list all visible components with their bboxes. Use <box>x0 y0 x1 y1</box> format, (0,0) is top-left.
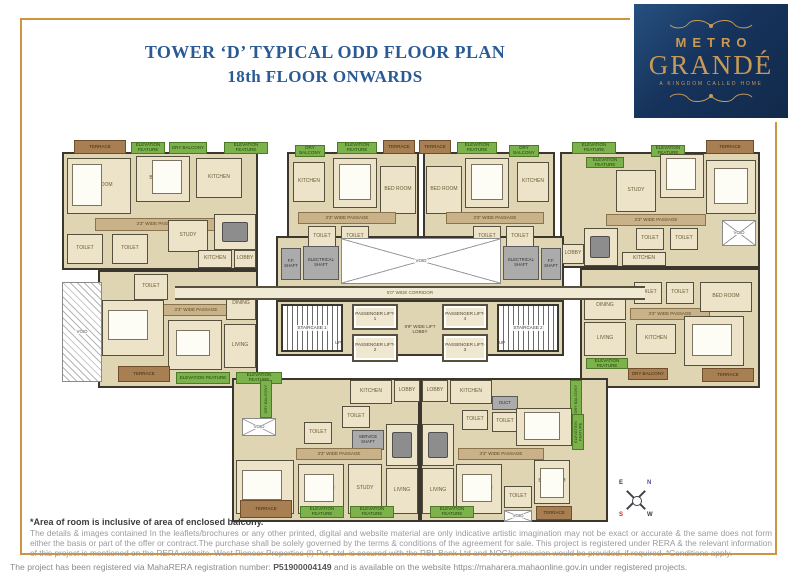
toilet-area: TOILET <box>342 406 370 428</box>
rera-registration-number: P51900004149 <box>273 562 331 572</box>
bed-area <box>692 324 732 356</box>
elevation-feature-area: ELEVATION FEATURE <box>176 372 230 384</box>
bed-area <box>304 474 334 502</box>
kitchen-area: KITCHEN <box>622 252 666 266</box>
void-area: VOID <box>62 282 102 382</box>
tbl-area <box>590 236 610 258</box>
f-f-shaft-area: F.F. SHAFT <box>281 248 301 280</box>
duct-area: DUCT <box>492 396 518 410</box>
tbl-area <box>222 222 248 242</box>
bed-area <box>524 412 560 440</box>
elevation-feature-area: ELEVATION FEATURE <box>300 506 344 518</box>
toilet-area: TOILET <box>462 410 488 430</box>
terrace-area: TERRACE <box>702 368 754 382</box>
3-3-wide-passage-area: 3'3" WIDE PASSAGE <box>458 448 544 460</box>
bed-area <box>152 160 182 194</box>
logo-tagline: A KINGDOM CALLED HOME <box>659 81 762 87</box>
dry-balcony-area: DRY BALCONY <box>509 145 539 157</box>
bed-room-area: BED ROOM <box>380 166 416 214</box>
kitchen-area: KITCHEN <box>196 158 242 198</box>
elevation-feature-area: ELEVATION FEATURE <box>224 142 268 154</box>
terrace-area: TERRACE <box>706 140 754 154</box>
f-f-shaft-area: F.F. SHAFT <box>541 248 561 280</box>
logo-line2: GRANDÉ <box>649 53 774 77</box>
area-note: *Area of room is inclusive of area of en… <box>30 517 263 527</box>
toilet-area: TOILET <box>504 486 532 508</box>
kitchen-area: KITCHEN <box>350 380 392 404</box>
elevation-feature-area: ELEVATION FEATURE <box>337 142 377 154</box>
compass-north-label: N <box>647 480 651 486</box>
logo-flourish-top-icon <box>666 20 756 32</box>
tbl-area <box>428 432 448 458</box>
living-area: LIVING <box>584 322 626 356</box>
elevation-feature-area: ELEVATION FEATURE <box>430 506 474 518</box>
toilet-area: TOILET <box>112 234 148 264</box>
toilet-area: TOILET <box>304 422 332 444</box>
bed-room-area: BED ROOM <box>700 282 752 312</box>
bed-area <box>339 164 371 200</box>
terrace-area: TERRACE <box>419 140 451 154</box>
kitchen-area: KITCHEN <box>636 324 676 354</box>
bed-area <box>471 164 503 200</box>
living-area: LIVING <box>224 324 256 368</box>
toilet-area: TOILET <box>308 226 336 248</box>
bed-room-area: BED ROOM <box>426 166 462 214</box>
toilet-area: TOILET <box>506 226 534 248</box>
up-area: UP <box>494 338 510 348</box>
rera-footer: The project has been registered via Maha… <box>10 562 796 572</box>
elevation-feature-area: ELEVATION FEATURE <box>236 372 282 384</box>
lobby-area: LOBBY <box>234 250 256 268</box>
elevation-feature-area: ELEVATION FEATURE <box>457 142 497 154</box>
electrical-shaft-area: ELECTRICAL SHAFT <box>503 246 539 280</box>
bed-area <box>176 330 210 356</box>
bed-area <box>666 158 696 190</box>
passenger-lift-1-area: PASSENGER LIFT-1 <box>352 304 398 330</box>
kitchen-area: KITCHEN <box>517 162 549 202</box>
bed-area <box>242 470 282 500</box>
kitchen-area: KITCHEN <box>198 250 232 268</box>
toilet-area: TOILET <box>670 228 698 250</box>
logo-line1: METRO <box>676 35 753 50</box>
terrace-area: TERRACE <box>74 140 126 154</box>
elevation-feature-area: ELEVATION FEATURE <box>586 358 628 369</box>
bed-area <box>462 474 492 502</box>
compass-center <box>632 496 642 506</box>
bed-area <box>72 164 102 206</box>
electrical-shaft-area: ELECTRICAL SHAFT <box>303 246 339 280</box>
void-area: VOID <box>242 418 276 436</box>
study-area: STUDY <box>168 220 208 252</box>
bed-area <box>540 468 564 498</box>
passenger-lift-4-area: PASSENGER LIFT-4 <box>442 304 488 330</box>
tbl-area <box>392 432 412 458</box>
toilet-area: TOILET <box>492 412 518 432</box>
footer-prefix: The project has been registered via Maha… <box>10 562 273 572</box>
elevation-feature-area: ELEVATION FEATURE <box>131 142 165 154</box>
elevation-feature-area: ELEVATION FEATURE <box>572 142 616 154</box>
legal-disclaimer: The details & images contained In the le… <box>30 529 772 559</box>
kitchen-area: KITCHEN <box>293 162 325 202</box>
compass-east-label: E <box>619 480 623 486</box>
up-area: UP <box>330 338 346 348</box>
void-area: VOID <box>504 510 532 522</box>
void-area: VOID <box>341 238 501 284</box>
dry-balcony-area: DRY BALCONY <box>628 368 668 380</box>
toilet-area: TOILET <box>67 234 103 264</box>
study-area: STUDY <box>616 170 656 212</box>
elevation-feature-area: ELEVATION FEATURE <box>572 414 584 450</box>
dry-balcony-area: DRY BALCONY <box>260 380 272 418</box>
elevation-feature-area: ELEVATION FEATURE <box>350 506 394 518</box>
void-area: VOID <box>722 220 756 246</box>
passenger-lift-2-area: PASSENGER LIFT-2 <box>352 334 398 362</box>
bed-area <box>108 310 148 340</box>
lobby-area: LOBBY <box>562 244 584 264</box>
3-3-wide-passage-area: 3'3" WIDE PASSAGE <box>446 212 544 224</box>
toilet-area: TOILET <box>636 228 664 250</box>
compass-west-label: W <box>647 512 653 518</box>
3-3-wide-passage-area: 3'3" WIDE PASSAGE <box>298 212 396 224</box>
metro-grande-logo: METRO GRANDÉ A KINGDOM CALLED HOME <box>630 0 792 122</box>
5-0-wide-corridor-area: 5'0" WIDE CORRIDOR <box>175 286 645 300</box>
footer-suffix: and is available on the website https://… <box>332 562 688 572</box>
terrace-area: TERRACE <box>383 140 415 154</box>
compass-south-label: S <box>619 512 623 518</box>
3-3-wide-passage-area: 3'3" WIDE PASSAGE <box>606 214 706 226</box>
logo-flourish-bottom-icon <box>666 90 756 102</box>
terrace-area: TERRACE <box>240 500 292 518</box>
dry-balcony-area: DRY BALCONY <box>169 142 207 154</box>
toilet-area: TOILET <box>666 282 694 304</box>
terrace-area: TERRACE <box>118 366 170 382</box>
lobby-area: LOBBY <box>394 380 420 402</box>
elevation-feature-area: ELEVATION FEATURE <box>586 157 624 168</box>
toilet-area: TOILET <box>134 274 168 300</box>
dry-balcony-area: DRY BALCONY <box>295 145 325 157</box>
compass-icon: E N W S <box>614 478 658 522</box>
lobby-area: LOBBY <box>422 380 448 402</box>
9-9-wide-lift-lobby-area: 9'9" WIDE LIFT LOBBY <box>400 316 440 344</box>
service-shaft-area: SERVICE SHAFT <box>352 430 384 450</box>
3-3-wide-passage-area: 3'3" WIDE PASSAGE <box>296 448 382 460</box>
passenger-lift-3-area: PASSENGER LIFT-3 <box>442 334 488 362</box>
terrace-area: TERRACE <box>536 506 572 520</box>
kitchen-area: KITCHEN <box>450 380 492 404</box>
bed-area <box>714 168 748 204</box>
